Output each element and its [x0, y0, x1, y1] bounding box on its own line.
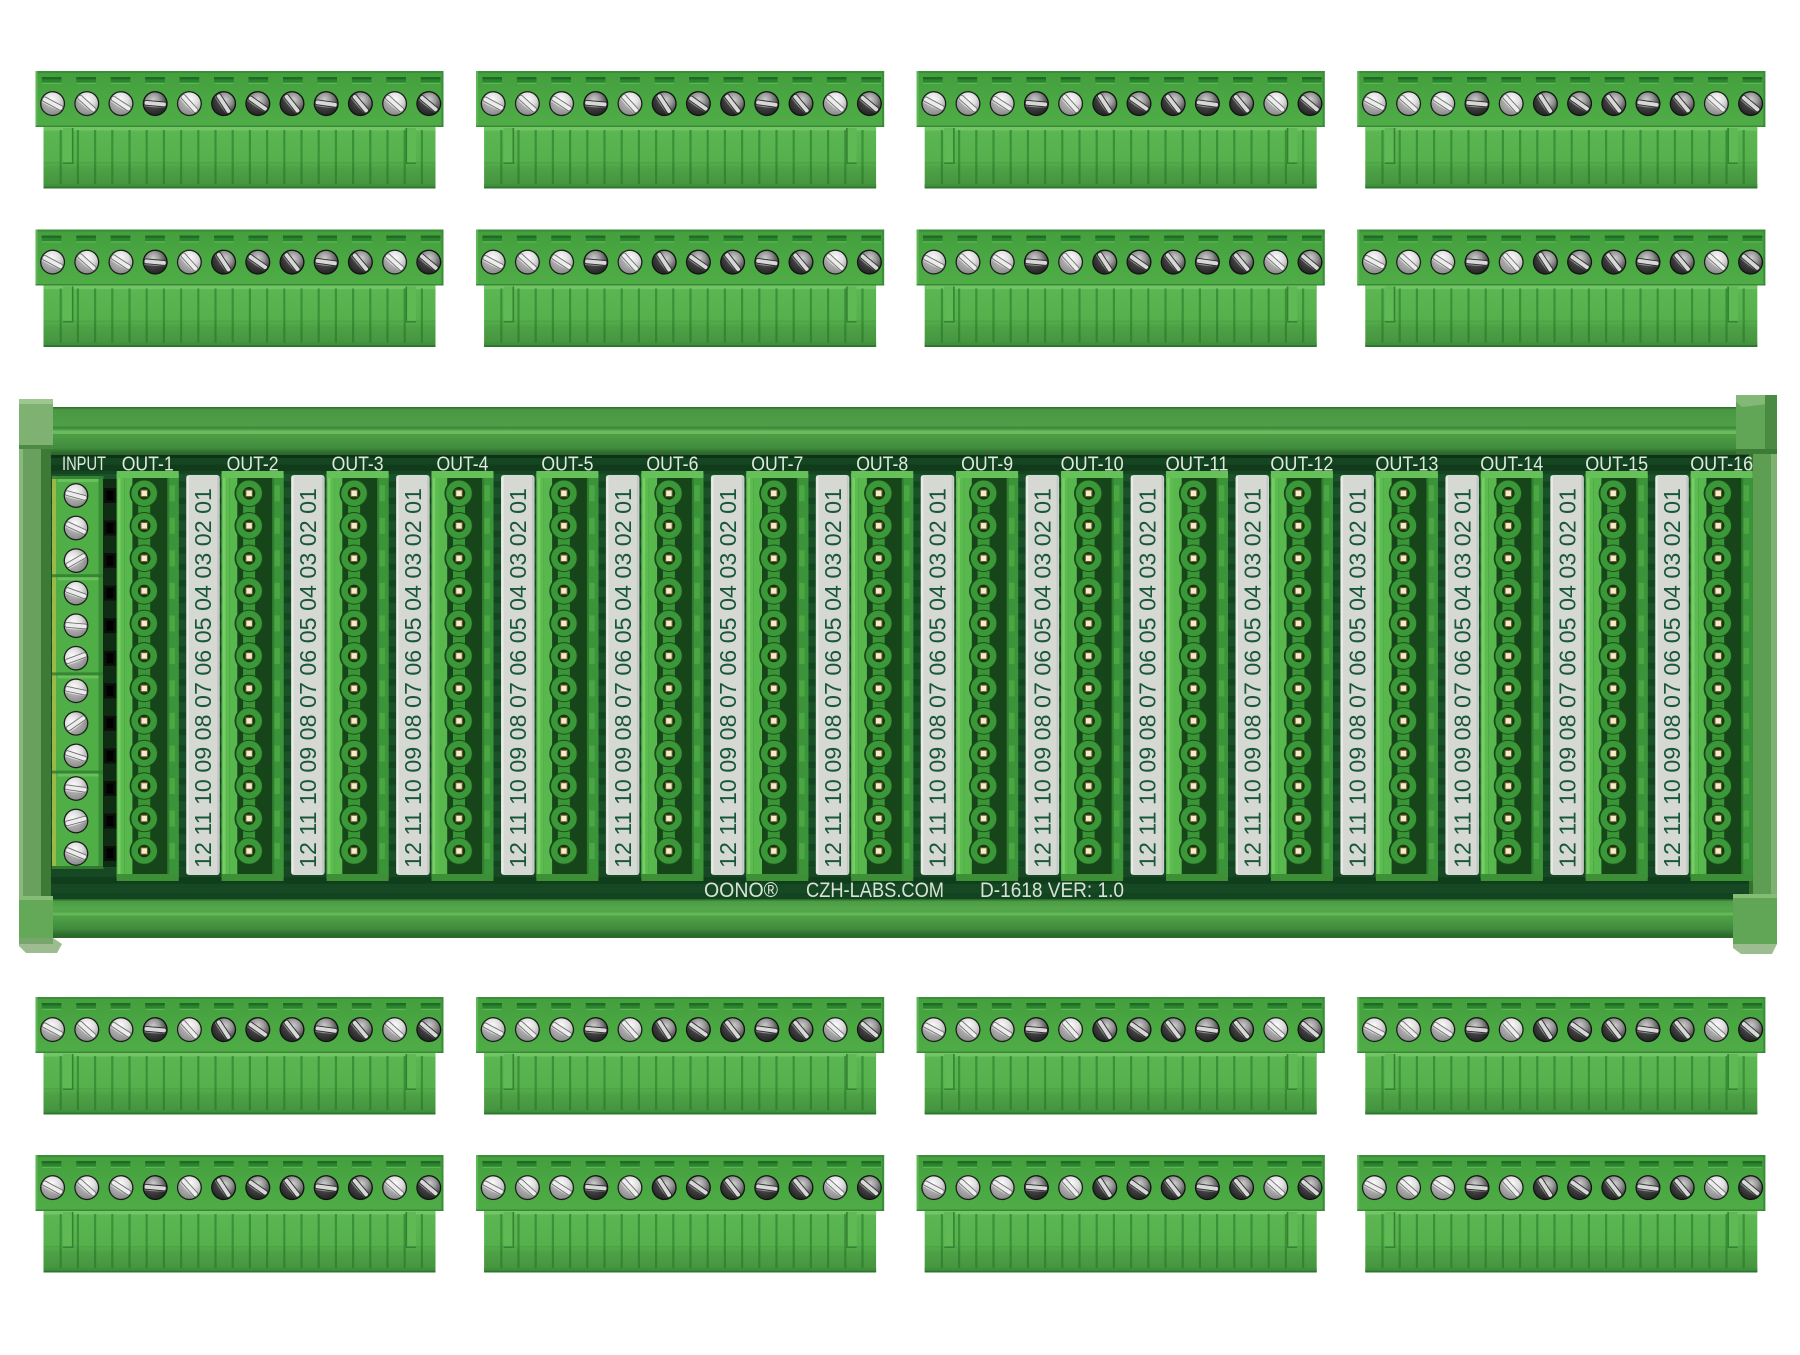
svg-text:OUT-3: OUT-3 — [332, 454, 384, 476]
svg-text:OUT-10: OUT-10 — [1061, 454, 1124, 476]
svg-text:OUT-7: OUT-7 — [751, 454, 803, 476]
svg-text:OUT-14: OUT-14 — [1480, 454, 1543, 476]
svg-text:INPUT: INPUT — [62, 454, 106, 475]
svg-text:OUT-9: OUT-9 — [961, 454, 1013, 476]
svg-text:OUT-13: OUT-13 — [1375, 454, 1438, 476]
svg-text:OONO®: OONO® — [704, 879, 778, 902]
svg-text:OUT-1: OUT-1 — [122, 454, 174, 476]
svg-text:OUT-6: OUT-6 — [646, 454, 698, 476]
svg-text:OUT-11: OUT-11 — [1166, 454, 1229, 476]
svg-text:OUT-5: OUT-5 — [541, 454, 593, 476]
svg-text:OUT-12: OUT-12 — [1270, 454, 1333, 476]
svg-text:OUT-2: OUT-2 — [227, 454, 279, 476]
svg-text:OUT-16: OUT-16 — [1690, 454, 1753, 476]
svg-text:D-1618 VER: 1.0: D-1618 VER: 1.0 — [980, 879, 1124, 902]
svg-text:OUT-4: OUT-4 — [437, 454, 489, 476]
svg-text:CZH-LABS.COM: CZH-LABS.COM — [806, 879, 944, 902]
svg-text:OUT-15: OUT-15 — [1585, 454, 1648, 476]
svg-text:OUT-8: OUT-8 — [856, 454, 908, 476]
